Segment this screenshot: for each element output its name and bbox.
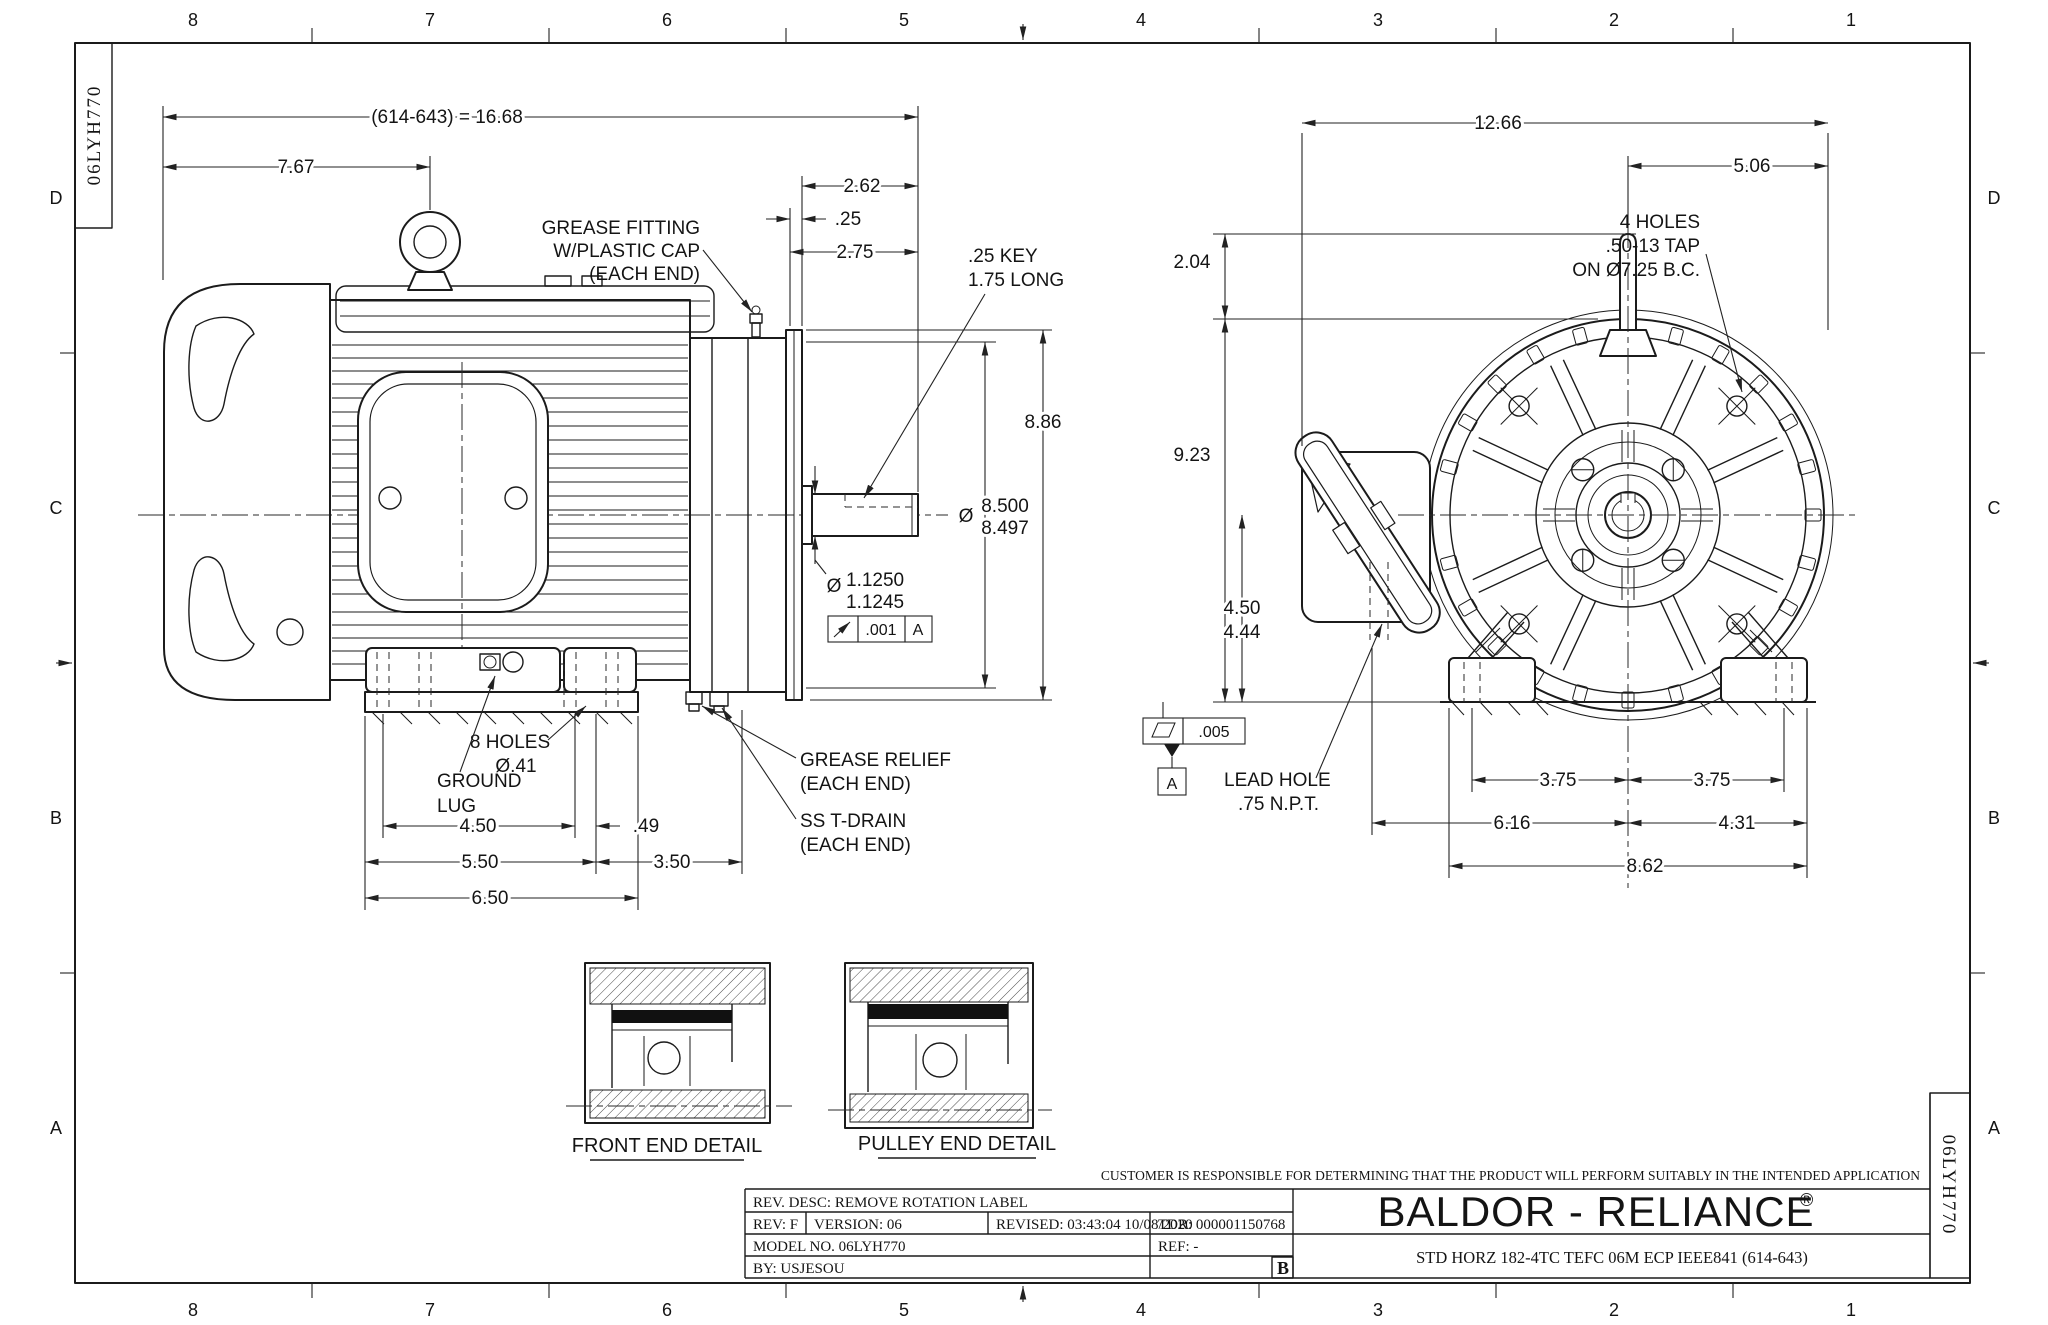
key-label-2: 1.75 LONG bbox=[968, 270, 1064, 291]
grease-relief-label-1: GREASE RELIEF bbox=[800, 750, 951, 771]
model-cell: MODEL NO. 06LYH770 bbox=[753, 1239, 906, 1255]
t-drain-label-2: (EACH END) bbox=[800, 835, 911, 856]
dim-shaft-extension: 2.62 bbox=[844, 176, 881, 197]
dim-base-width: 8.62 bbox=[1627, 856, 1664, 877]
runout-tolerance: .001 bbox=[865, 622, 896, 639]
zone-col-bottom: 7 bbox=[425, 1300, 435, 1320]
dim-lead-offset: 6.16 bbox=[1494, 813, 1531, 834]
end-view-dimensions: 12.66 5.06 4 HOLES .50-13 TAP ON Ø7.25 B… bbox=[1143, 113, 1828, 878]
sheet-id-top-left: 06LYH770 bbox=[84, 85, 105, 186]
drawing-sheet: 06LYH770 06LYH770 8 7 6 5 4 3 2 1 8 7 6 … bbox=[0, 0, 2048, 1325]
zone-col-top: 1 bbox=[1846, 10, 1856, 30]
zone-col-bottom: 2 bbox=[1609, 1300, 1619, 1320]
flatness-symbol-icon bbox=[1152, 723, 1175, 737]
datum-triangle-icon bbox=[1164, 744, 1180, 757]
fan-cover-drain-hole bbox=[277, 619, 303, 645]
datum-label: A bbox=[1167, 776, 1178, 793]
runout-symbol-icon bbox=[834, 622, 850, 637]
t-drain-label-1: SS T-DRAIN bbox=[800, 811, 906, 832]
base-plate bbox=[365, 692, 638, 712]
grease-fitting-label-1: GREASE FITTING bbox=[542, 218, 700, 239]
holes-label-1: 8 HOLES bbox=[470, 732, 550, 753]
rev-desc-cell: REV. DESC: REMOVE ROTATION LABEL bbox=[753, 1195, 1028, 1211]
pulley-end-detail-view: PULLEY END DETAIL bbox=[828, 963, 1056, 1158]
conduit-box bbox=[1282, 421, 1454, 644]
sheet-id-bottom-right: 06LYH770 bbox=[1938, 1135, 1959, 1236]
ref-cell: REF: - bbox=[1158, 1239, 1198, 1255]
zone-row-right: C bbox=[1988, 498, 2001, 518]
grease-relief-icon bbox=[686, 692, 702, 711]
shaft-fit-upper: 8.500 bbox=[981, 496, 1029, 517]
dim-foot-offset: .49 bbox=[633, 816, 659, 837]
zone-row-left: D bbox=[50, 188, 63, 208]
zone-col-top: 5 bbox=[899, 10, 909, 30]
tap-label-1: 4 HOLES bbox=[1620, 212, 1700, 233]
key-fit-upper: 1.1250 bbox=[846, 570, 904, 591]
brand-title: BALDOR - RELIANCE bbox=[1377, 1188, 1814, 1235]
ground-lug-label-1: GROUND bbox=[437, 771, 521, 792]
zone-row-left: B bbox=[50, 808, 62, 828]
dim-bc-left: 3.75 bbox=[1540, 770, 1577, 791]
zone-col-top: 7 bbox=[425, 10, 435, 30]
grease-fitting-label-3: (EACH END) bbox=[589, 264, 700, 285]
sheet-size: B bbox=[1277, 1258, 1289, 1278]
dim-face-length: 2.75 bbox=[837, 242, 874, 263]
dim-bc-right: 3.75 bbox=[1694, 770, 1731, 791]
rev-cell: REV: F bbox=[753, 1217, 798, 1233]
shaft-shoulder bbox=[802, 486, 812, 544]
lead-hole-label-1: LEAD HOLE bbox=[1224, 770, 1331, 791]
motor-foot-front bbox=[366, 648, 560, 692]
tap-label-2: .50-13 TAP bbox=[1606, 236, 1700, 257]
dim-width: 12.66 bbox=[1474, 113, 1522, 134]
shaft bbox=[812, 494, 918, 536]
shaft-fit-phi: Ø bbox=[959, 506, 974, 527]
bearing-seal-bar bbox=[612, 1010, 732, 1023]
key-fit-lower: 1.1245 bbox=[846, 592, 904, 613]
dim-overall-length: (614-643) = 16.68 bbox=[371, 107, 523, 128]
zone-col-bottom: 5 bbox=[899, 1300, 909, 1320]
base-hatching bbox=[372, 712, 632, 724]
zone-col-top: 2 bbox=[1609, 10, 1619, 30]
runout-datum: A bbox=[913, 622, 924, 639]
dim-feet-mid: 5.50 bbox=[462, 852, 499, 873]
by-cell: BY: USJESOU bbox=[753, 1261, 845, 1277]
zone-col-top: 6 bbox=[662, 10, 672, 30]
zone-col-bottom: 6 bbox=[662, 1300, 672, 1320]
zone-col-bottom: 4 bbox=[1136, 1300, 1146, 1320]
zone-row-right: A bbox=[1988, 1118, 2000, 1138]
dim-to-eyebolt: 7.67 bbox=[278, 157, 315, 178]
dim-shaft-height-min: 4.44 bbox=[1224, 622, 1261, 643]
drawing-canvas: 06LYH770 06LYH770 8 7 6 5 4 3 2 1 8 7 6 … bbox=[0, 0, 2048, 1325]
dim-eyebolt-height: 2.04 bbox=[1174, 252, 1211, 273]
t-drain-icon bbox=[710, 692, 728, 712]
frame-top-cap bbox=[336, 286, 714, 332]
dim-flange-thickness: .25 bbox=[835, 209, 861, 230]
zone-row-right: D bbox=[1988, 188, 2001, 208]
zone-row-right: B bbox=[1988, 808, 2000, 828]
front-end-detail-view: FRONT END DETAIL bbox=[566, 963, 792, 1160]
grease-fitting-label-2: W/PLASTIC CAP bbox=[553, 241, 700, 262]
motor-side-view bbox=[138, 212, 948, 724]
key-label-1: .25 KEY bbox=[968, 246, 1038, 267]
drawing-description: STD HORZ 182-4TC TEFC 06M ECP IEEE841 (6… bbox=[1416, 1248, 1808, 1267]
fan-cover-vent-top bbox=[189, 317, 254, 421]
disclaimer-text: CUSTOMER IS RESPONSIBLE FOR DETERMINING … bbox=[1101, 1168, 1920, 1183]
dim-foot-rear: 3.50 bbox=[654, 852, 691, 873]
tdr-cell: TDR: 000001150768 bbox=[1158, 1217, 1285, 1233]
dim-feet-span: 4.50 bbox=[460, 816, 497, 837]
zone-row-left: A bbox=[50, 1118, 62, 1138]
cover-bolts bbox=[1440, 327, 1821, 708]
zone-col-bottom: 3 bbox=[1373, 1300, 1383, 1320]
runout-control-frame: .001 A bbox=[828, 616, 932, 642]
eyebolt-icon bbox=[400, 212, 460, 272]
ground-lug-label-2: LUG bbox=[437, 796, 476, 817]
dim-flange-od: 8.86 bbox=[1025, 412, 1062, 433]
flatness-tolerance: .005 bbox=[1198, 724, 1229, 741]
zone-col-top: 4 bbox=[1136, 10, 1146, 30]
version-cell: VERSION: 06 bbox=[814, 1217, 902, 1233]
dim-foot-offset: 4.31 bbox=[1719, 813, 1756, 834]
fan-cover-vent-bottom bbox=[189, 557, 254, 661]
lead-hole-label-2: .75 N.P.T. bbox=[1238, 794, 1319, 815]
front-detail-label: FRONT END DETAIL bbox=[572, 1135, 762, 1157]
zone-col-bottom: 1 bbox=[1846, 1300, 1856, 1320]
zone-row-left: C bbox=[50, 498, 63, 518]
grease-fitting-icon bbox=[750, 306, 762, 337]
bearing-ball bbox=[923, 1043, 957, 1077]
eyebolt-base bbox=[408, 272, 452, 290]
border-frame: 06LYH770 06LYH770 8 7 6 5 4 3 2 1 8 7 6 … bbox=[50, 10, 2001, 1320]
dim-height: 9.23 bbox=[1174, 445, 1211, 466]
dim-feet-outer: 6.50 bbox=[472, 888, 509, 909]
registered-mark-icon: ® bbox=[1800, 1190, 1813, 1210]
bearing-ball bbox=[648, 1042, 680, 1074]
bearing-seal-bar bbox=[868, 1004, 1008, 1019]
motor-foot-rear bbox=[564, 648, 636, 692]
shaft-fit-lower: 8.497 bbox=[981, 518, 1029, 539]
grease-relief-label-2: (EACH END) bbox=[800, 774, 911, 795]
dim-shaft-height-nom: 4.50 bbox=[1224, 598, 1261, 619]
key-fit-phi: Ø bbox=[827, 576, 842, 597]
zone-col-top: 3 bbox=[1373, 10, 1383, 30]
tap-label-3: ON Ø7.25 B.C. bbox=[1572, 260, 1700, 281]
pulley-detail-label: PULLEY END DETAIL bbox=[858, 1133, 1056, 1155]
side-view-dimensions: (614-643) = 16.68 7.67 2.62 .25 2.75 GRE… bbox=[163, 106, 1064, 910]
dim-shaft-to-face: 5.06 bbox=[1734, 156, 1771, 177]
zone-col-bottom: 8 bbox=[188, 1300, 198, 1320]
zone-col-top: 8 bbox=[188, 10, 198, 30]
